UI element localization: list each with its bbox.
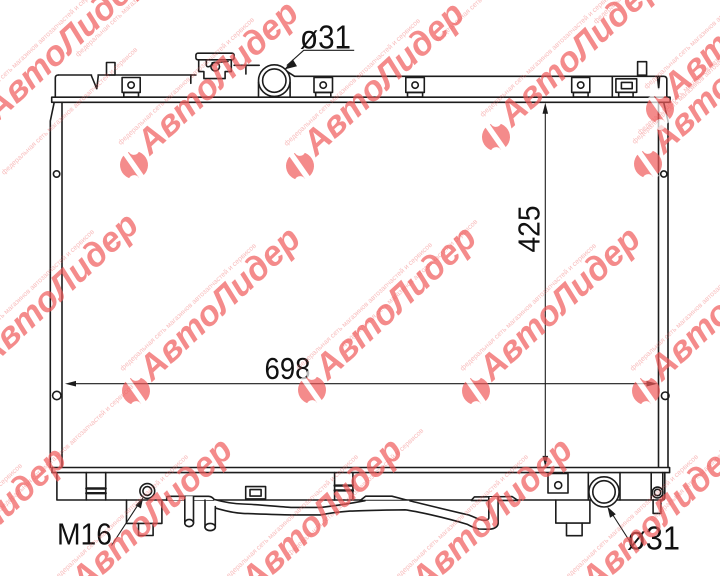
svg-text:ø31: ø31 bbox=[300, 19, 351, 56]
svg-text:425: 425 bbox=[512, 206, 547, 253]
